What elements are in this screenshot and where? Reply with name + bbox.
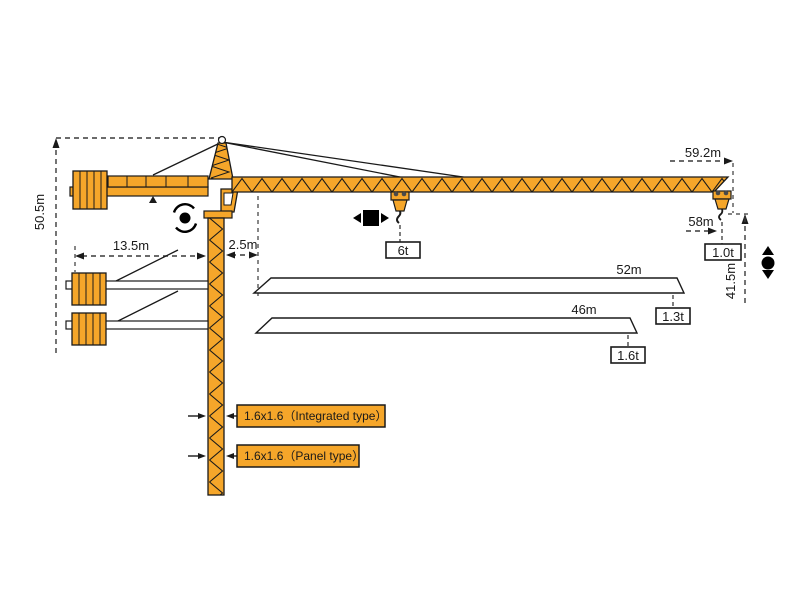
cab-window — [224, 193, 233, 205]
arrow-up-icon — [53, 138, 60, 148]
arrow-right-icon — [198, 453, 206, 459]
dim-counterjib-radius: 13.5m — [75, 238, 206, 272]
counterweight-top-block — [73, 171, 107, 209]
hoist-arrow-down — [762, 270, 774, 279]
label-jib-52m: 52m — [616, 262, 641, 277]
arrow-left-icon — [226, 453, 234, 459]
label-hook-radius: 58m — [688, 214, 713, 229]
turntable — [204, 211, 232, 218]
jib-length-bar-52m — [254, 278, 684, 293]
trolley-travel-icon — [353, 210, 389, 226]
label-total-height: 50.5m — [32, 194, 47, 230]
label-capacity-6t: 6t — [398, 243, 409, 258]
arrow-right-icon — [198, 413, 206, 419]
main-jib — [232, 177, 728, 192]
hook-icon — [719, 209, 722, 220]
trolley-arrow-left — [353, 213, 361, 223]
trolley-bracket — [391, 192, 409, 200]
counterjib-rail — [108, 176, 208, 187]
slewing-arc-bottom — [176, 224, 196, 232]
slewing-rotation-icon — [174, 204, 196, 232]
hook-hoisting-icon — [762, 246, 775, 279]
tip-hook-block — [715, 199, 729, 209]
ballast-row-1 — [66, 250, 208, 305]
arrow-right-icon — [197, 253, 206, 260]
tower-head-group — [153, 137, 470, 180]
label-capacity-1-6t: 1.6t — [617, 348, 639, 363]
jib-length-bar-46m — [256, 318, 637, 333]
hook-block — [393, 200, 407, 211]
hoist-arrow-up — [762, 246, 774, 255]
arrow-right-icon — [249, 252, 258, 259]
counterjib-pointer-icon — [149, 196, 157, 203]
trolley-arrow-right — [381, 213, 389, 223]
trolley-wheel-icon — [724, 191, 729, 196]
label-root-offset: 2.5m — [229, 237, 258, 252]
label-counterjib-radius: 13.5m — [113, 238, 149, 253]
tower-group — [204, 189, 238, 495]
hook-icon — [397, 211, 400, 223]
apex-pulley-icon — [219, 137, 226, 144]
crane-spec-diagram: 50.5m — [0, 0, 800, 600]
slewing-dot — [180, 213, 191, 224]
main-trolley-group: 6t — [386, 192, 420, 258]
ballast-tie-line — [116, 250, 178, 281]
label-lifting-height: 41.5m — [723, 263, 738, 299]
pendant-line-jib-outer — [222, 142, 470, 178]
jib-option-52m: 52m 1.3t — [254, 262, 690, 324]
tower-head — [209, 143, 233, 179]
hoist-dot — [762, 257, 775, 270]
slewing-arc-top — [174, 204, 194, 212]
label-jib-46m: 46m — [571, 302, 596, 317]
label-max-radius: 59.2m — [685, 145, 721, 160]
arrow-right-icon — [724, 158, 733, 165]
label-mast-panel: 1.6x1.6（Panel type） — [244, 449, 364, 463]
label-capacity-1-3t: 1.3t — [662, 309, 684, 324]
tip-trolley-bracket — [713, 191, 731, 199]
trolley-wheel-icon — [716, 191, 721, 196]
trolley-wheel-icon — [402, 192, 407, 197]
arrow-left-icon — [75, 253, 84, 260]
arrow-left-icon — [226, 252, 235, 259]
ballast-tie-line — [116, 291, 178, 322]
trolley-wheel-icon — [394, 192, 399, 197]
label-capacity-1-0t: 1.0t — [712, 245, 734, 260]
crane-diagram-canvas: 50.5m — [0, 0, 800, 600]
trolley-square — [363, 210, 379, 226]
counterweight-block — [72, 313, 106, 345]
jib-option-46m: 46m 1.6t — [256, 302, 645, 363]
counterweight-block — [72, 273, 106, 305]
pendant-line-jib-inner — [222, 142, 405, 178]
arrow-left-icon — [226, 413, 234, 419]
tower-mast — [208, 218, 224, 495]
label-mast-integrated: 1.6x1.6（Integrated type） — [244, 409, 387, 423]
